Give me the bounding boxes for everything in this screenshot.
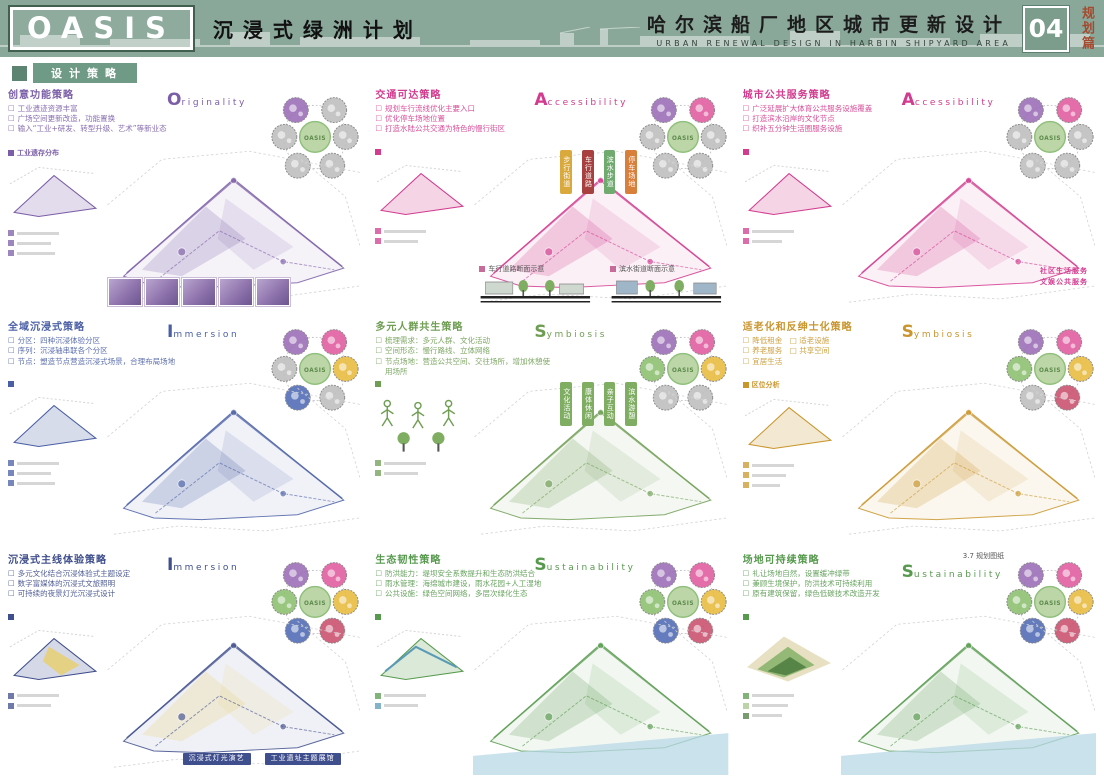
panel-bullets: □工业遗迹资源丰富 □广场空间更新改造，功能置换 □输入“工业+研发、转型升级、…	[8, 104, 185, 134]
panel-aging-anti-gentrification: 适老化和反绅士化策略 □降低租金 □ 适老设施 □养老服务 □ 共享空间 □宜居…	[743, 318, 1096, 542]
legend-row	[375, 238, 467, 244]
bullet-item: □优化停车场地位置	[375, 114, 552, 124]
bullet-item: □序列：沉浸轴串联各个分区	[8, 346, 185, 356]
panel-map-area	[106, 380, 361, 542]
activity-banner: 亲子互动	[604, 382, 616, 426]
bullet-text: 分区：四种沉浸体验分区	[18, 336, 101, 346]
checkbox-icon: □	[375, 357, 382, 377]
svg-text:OASIS: OASIS	[1039, 368, 1061, 374]
checkbox-icon: □	[8, 114, 15, 124]
checkbox-icon: □	[375, 336, 382, 346]
bullet-text: 降低租金 □ 适老设施	[752, 336, 829, 346]
photo-thumbnail	[256, 278, 290, 306]
bullet-text: 数字富媒体的沉浸式文旅照明	[18, 579, 116, 589]
bullet-item: □雨水管理：海绵城市建设，雨水花园+人工湿地	[375, 579, 552, 589]
legend-title: 区位分析	[743, 380, 835, 390]
checkbox-icon: □	[8, 569, 15, 579]
site-map	[106, 613, 361, 775]
panel-immersion-zoning: 全域沉浸式策略 □分区：四种沉浸体验分区 □序列：沉浸轴串联各个分区 □节点：塑…	[8, 318, 361, 542]
checkbox-icon: □	[375, 104, 382, 114]
panel-bullets: □防洪能力：堤坝安全系数提升和生态防洪结合 □雨水管理：海绵城市建设，雨水花园+…	[375, 569, 552, 599]
panel-site-sustainability: 3.7 规划图纸 场地可持续策略 □礼让场地自然，设置缓冲绿带 □兼顾生境保护，…	[743, 551, 1096, 775]
theme-labels: 沉浸式灯光演艺 工业遗址主题展馆	[183, 753, 341, 765]
bullet-item: □织补五分钟生活圈服务设施	[743, 124, 920, 134]
bullet-item: □空间形态：慢行路线、立体网络	[375, 346, 552, 356]
svg-text:OASIS: OASIS	[672, 136, 694, 142]
photo-thumbnail	[182, 278, 216, 306]
panel-keyword: Accessibility	[902, 90, 996, 110]
bullet-text: 公共设施：绿色空间网络，多层次绿化生态	[385, 589, 528, 599]
legend-row	[8, 703, 100, 709]
checkbox-icon: □	[743, 579, 750, 589]
strategy-grid: 创意功能策略 □工业遗迹资源丰富 □广场空间更新改造，功能置换 □输入“工业+研…	[8, 86, 1096, 775]
bullet-item: □兼顾生境保护，防洪技术可持续利用	[743, 579, 920, 589]
bullet-text: 梳理需求：多元人群、文化活动	[385, 336, 490, 346]
bullet-text: 礼让场地自然，设置缓冲绿带	[752, 569, 850, 579]
legend-title	[375, 613, 467, 621]
checkbox-icon: □	[8, 346, 15, 356]
legend-title	[375, 148, 467, 156]
section-caption: 滨水街道断面示意	[610, 264, 723, 274]
theme-label: 沉浸式灯光演艺	[183, 753, 251, 765]
checkbox-icon: □	[375, 346, 382, 356]
checkbox-icon: □	[8, 336, 15, 346]
bullet-text: 空间形态：慢行路线、立体网络	[385, 346, 490, 356]
svg-text:OASIS: OASIS	[304, 136, 326, 142]
panel-bullets: □礼让场地自然，设置缓冲绿带 □兼顾生境保护，防洪技术可持续利用 □原有建筑保留…	[743, 569, 920, 599]
checkbox-icon: □	[743, 346, 750, 356]
mini-map	[375, 160, 467, 224]
panel-keyword: Symbiosis	[534, 322, 607, 342]
photo-thumbnail	[108, 278, 142, 306]
panel-map-area	[473, 613, 728, 775]
panel-map-area	[106, 148, 361, 310]
panel-keyword: Immersion	[167, 555, 239, 575]
legend-row	[743, 228, 835, 234]
panel-keyword: Immersion	[167, 322, 239, 342]
photo-thumbnail	[219, 278, 253, 306]
panel-keyword: Originality	[167, 90, 247, 110]
legend-row	[8, 693, 100, 699]
panel-immersive-experience-line: 沉浸式主线体验策略 □多元文化结合沉浸体验式主题设定 □数字富媒体的沉浸式文旅照…	[8, 551, 361, 775]
bullet-text: 打造滨水沿岸的文化节点	[752, 114, 835, 124]
mini-map	[8, 625, 100, 689]
legend-title	[8, 380, 100, 388]
checkbox-icon: □	[8, 124, 15, 134]
bullet-item: □规划车行流线优化主要入口	[375, 104, 552, 114]
panel-bullets: □多元文化结合沉浸体验式主题设定 □数字富媒体的沉浸式文旅照明 □可持续的夜景灯…	[8, 569, 185, 599]
legend-row	[8, 250, 100, 256]
svg-text:OASIS: OASIS	[672, 368, 694, 374]
checkbox-icon: □	[8, 104, 15, 114]
bullet-item: □输入“工业+研发、转型升级、艺术”等新业态	[8, 124, 185, 134]
panel-mini-column	[743, 613, 835, 775]
svg-text:OASIS: OASIS	[672, 600, 694, 606]
panel-ecological-resilience: 生态韧性策略 □防洪能力：堤坝安全系数提升和生态防洪结合 □雨水管理：海绵城市建…	[375, 551, 728, 775]
section-drawing	[610, 276, 723, 306]
section-drawing	[479, 276, 592, 306]
checkbox-icon: □	[743, 114, 750, 124]
photo-thumbnail	[145, 278, 179, 306]
bullet-item: □梳理需求：多元人群、文化活动	[375, 336, 552, 346]
svg-text:OASIS: OASIS	[1039, 136, 1061, 142]
legend-title	[743, 613, 835, 621]
panel-keyword: Accessibility	[534, 90, 628, 110]
bullet-text: 养老服务 □ 共享空间	[752, 346, 829, 356]
legend-row	[375, 228, 467, 234]
panel-keyword: Symbiosis	[902, 322, 975, 342]
site-map	[841, 380, 1096, 542]
checkbox-icon: □	[375, 114, 382, 124]
bullet-item: □降低租金 □ 适老设施	[743, 336, 920, 346]
checkbox-icon: □	[8, 579, 15, 589]
service-label: 文娱公共服务	[1040, 279, 1088, 287]
road-banner: 车行道路	[582, 150, 594, 194]
bullet-item: □礼让场地自然，设置缓冲绿带	[743, 569, 920, 579]
bullet-text: 节点场地：营造公共空间、交往场所，增加休憩使用场所	[385, 357, 552, 377]
bullet-text: 原有建筑保留，绿色低碳技术改造开发	[752, 589, 880, 599]
bullet-text: 雨水管理：海绵城市建设，雨水花园+人工湿地	[385, 579, 541, 589]
panel-mini-column	[375, 148, 467, 310]
panel-mini-column	[8, 380, 100, 542]
site-map	[106, 380, 361, 542]
legend-row	[743, 462, 835, 468]
road-type-banners: 步行街道 车行道路 滨水步道 停车场地	[560, 150, 637, 194]
bullet-text: 兼顾生境保护，防洪技术可持续利用	[752, 579, 872, 589]
header-bar: OASIS 沉浸式绿洲计划 哈尔滨船厂地区城市更新设计 URBAN RENEWA…	[0, 0, 1104, 57]
panel-keyword: Sustainability	[534, 555, 635, 575]
bullet-text: 多元文化结合沉浸体验式主题设定	[18, 569, 131, 579]
project-title-zh: 沉浸式绿洲计划	[213, 14, 423, 43]
panel-mini-column	[375, 613, 467, 775]
legend-row	[8, 230, 100, 236]
mini-map	[743, 160, 835, 224]
bullet-item: □养老服务 □ 共享空间	[743, 346, 920, 356]
panel-mini-column	[8, 613, 100, 775]
panel-traffic-accessibility: 交通可达策略 □规划车行流线优化主要入口 □优化停车场地位置 □打造水陆公共交通…	[375, 86, 728, 310]
panel-map-area: 沉浸式灯光演艺 工业遗址主题展馆	[106, 613, 361, 775]
bullet-text: 节点：塑造节点营造沉浸式场景，合理布局场地	[18, 357, 176, 367]
bullet-item: □打造水陆公共交通为特色的慢行街区	[375, 124, 552, 134]
industrial-photos-strip	[108, 278, 290, 306]
legend-title	[375, 380, 467, 388]
legend-row	[375, 703, 467, 709]
chapter-label: 规划篇	[1077, 6, 1096, 51]
panel-mini-column	[743, 148, 835, 310]
legend-row	[375, 470, 467, 476]
checkbox-icon: □	[743, 589, 750, 599]
bullet-item: □原有建筑保留，绿色低碳技术改造开发	[743, 589, 920, 599]
mini-map	[375, 625, 467, 689]
section-square-icon	[12, 66, 27, 81]
theme-label: 工业遗址主题展馆	[265, 753, 341, 765]
bullet-text: 序列：沉浸轴串联各个分区	[18, 346, 108, 356]
service-label: 社区生活服务	[1040, 268, 1088, 276]
section-caption: 车行道路断面示意	[479, 264, 592, 274]
checkbox-icon: □	[8, 357, 15, 367]
checkbox-icon: □	[743, 124, 750, 134]
mini-map	[8, 162, 100, 226]
bullet-text: 广泛延展扩大体育公共服务设施覆盖	[752, 104, 872, 114]
bullet-item: □公共设施：绿色空间网络，多层次绿化生态	[375, 589, 552, 599]
section-title: 设计策略	[33, 63, 137, 83]
legend-row	[743, 472, 835, 478]
activity-banner: 文化活动	[560, 382, 572, 426]
bullet-item: □防洪能力：堤坝安全系数提升和生态防洪结合	[375, 569, 552, 579]
checkbox-icon: □	[375, 569, 382, 579]
bullet-item: □宜居生活	[743, 357, 920, 367]
panel-keyword: Sustainability	[902, 562, 1003, 582]
bullet-text: 工业遗迹资源丰富	[18, 104, 78, 114]
service-labels: 社区生活服务 文娱公共服务	[1040, 268, 1088, 286]
page-number-badge: 04	[1023, 6, 1069, 52]
panel-symbiosis-people: 多元人群共生策略 □梳理需求：多元人群、文化活动 □空间形态：慢行路线、立体网络…	[375, 318, 728, 542]
checkbox-icon: □	[743, 104, 750, 114]
bullet-item: □多元文化结合沉浸体验式主题设定	[8, 569, 185, 579]
bullet-text: 广场空间更新改造，功能置换	[18, 114, 116, 124]
legend-row	[743, 713, 835, 719]
oasis-logo: OASIS	[10, 7, 193, 51]
bullet-item: □广泛延展扩大体育公共服务设施覆盖	[743, 104, 920, 114]
road-banner: 停车场地	[625, 150, 637, 194]
legend-title: 工业遗存分布	[8, 148, 100, 158]
activity-banners: 文化活动 康体休闲 亲子互动 滨水游憩	[560, 382, 637, 426]
bullet-item: □数字富媒体的沉浸式文旅照明	[8, 579, 185, 589]
panel-bullets: □梳理需求：多元人群、文化活动 □空间形态：慢行路线、立体网络 □节点场地：营造…	[375, 336, 552, 377]
checkbox-icon: □	[8, 589, 15, 599]
bullet-text: 规划车行流线优化主要入口	[385, 104, 475, 114]
panel-map-area	[841, 613, 1096, 775]
panel-mini-column: 工业遗存分布	[8, 148, 100, 310]
svg-text:OASIS: OASIS	[1039, 600, 1061, 606]
bullet-item: □工业遗迹资源丰富	[8, 104, 185, 114]
street-sections: 车行道路断面示意 滨水街道断面示意	[473, 264, 728, 310]
legend-row	[375, 693, 467, 699]
panel-mini-column: 区位分析	[743, 380, 835, 542]
site-map	[841, 613, 1096, 775]
bullet-item: □分区：四种沉浸体验分区	[8, 336, 185, 346]
checkbox-icon: □	[375, 589, 382, 599]
street-section-diagram: 车行道路断面示意	[479, 264, 592, 310]
checkbox-icon: □	[743, 357, 750, 367]
panel-mini-column	[375, 380, 467, 542]
panel-originality: 创意功能策略 □工业遗迹资源丰富 □广场空间更新改造，功能置换 □输入“工业+研…	[8, 86, 361, 310]
bullet-item: □可持续的夜景灯光沉浸式设计	[8, 589, 185, 599]
panel-public-service: 城市公共服务策略 □广泛延展扩大体育公共服务设施覆盖 □打造滨水沿岸的文化节点 …	[743, 86, 1096, 310]
bullet-text: 可持续的夜景灯光沉浸式设计	[18, 589, 116, 599]
legend-row	[8, 480, 100, 486]
legend-row	[8, 460, 100, 466]
legend-row	[375, 460, 467, 466]
svg-text:OASIS: OASIS	[304, 368, 326, 374]
checkbox-icon: □	[743, 569, 750, 579]
svg-text:OASIS: OASIS	[304, 600, 326, 606]
legend-row	[743, 482, 835, 488]
panel-map-area: 步行街道 车行道路 滨水步道 停车场地 车行道路断面示意 滨水街道断面示意	[473, 148, 728, 310]
mini-map	[743, 394, 835, 458]
legend-row	[743, 703, 835, 709]
figure-note: 3.7 规划图纸	[963, 551, 1004, 561]
bullet-item: □广场空间更新改造，功能置换	[8, 114, 185, 124]
panel-bullets: □广泛延展扩大体育公共服务设施覆盖 □打造滨水沿岸的文化节点 □织补五分钟生活圈…	[743, 104, 920, 134]
bullet-text: 宜居生活	[752, 357, 782, 367]
checkbox-icon: □	[375, 579, 382, 589]
panel-bullets: □规划车行流线优化主要入口 □优化停车场地位置 □打造水陆公共交通为特色的慢行街…	[375, 104, 552, 134]
panel-map-area: 社区生活服务 文娱公共服务	[841, 148, 1096, 310]
bullet-item: □节点场地：营造公共空间、交往场所，增加休憩使用场所	[375, 357, 552, 377]
poster-board: OASIS 沉浸式绿洲计划 哈尔滨船厂地区城市更新设计 URBAN RENEWA…	[0, 0, 1104, 779]
road-banner: 滨水步道	[604, 150, 616, 194]
panel-map-area: 文化活动 康体休闲 亲子互动 滨水游憩	[473, 380, 728, 542]
legend-title	[8, 613, 100, 621]
legend-row	[743, 238, 835, 244]
section-header: 设计策略	[12, 63, 137, 83]
bullet-text: 输入“工业+研发、转型升级、艺术”等新业态	[18, 124, 167, 134]
bullet-text: 织补五分钟生活圈服务设施	[752, 124, 842, 134]
checkbox-icon: □	[743, 336, 750, 346]
road-banner: 步行街道	[560, 150, 572, 194]
mini-map	[8, 392, 100, 456]
panel-bullets: □降低租金 □ 适老设施 □养老服务 □ 共享空间 □宜居生活	[743, 336, 920, 366]
activity-banner: 康体休闲	[582, 382, 594, 426]
bullet-item: □打造滨水沿岸的文化节点	[743, 114, 920, 124]
land-use-mini-map	[743, 625, 835, 689]
bullet-text: 优化停车场地位置	[385, 114, 445, 124]
bullet-text: 打造水陆公共交通为特色的慢行街区	[385, 124, 505, 134]
legend-row	[8, 470, 100, 476]
people-activity-sketch	[375, 392, 467, 456]
panel-map-area	[841, 380, 1096, 542]
bullet-item: □节点：塑造节点营造沉浸式场景，合理布局场地	[8, 357, 185, 367]
board-title-en: URBAN RENEWAL DESIGN IN HARBIN SHIPYARD …	[647, 39, 1011, 48]
legend-row	[8, 240, 100, 246]
legend-title	[743, 148, 835, 156]
activity-banner: 滨水游憩	[625, 382, 637, 426]
checkbox-icon: □	[375, 124, 382, 134]
legend-row	[743, 693, 835, 699]
bullet-text: 防洪能力：堤坝安全系数提升和生态防洪结合	[385, 569, 535, 579]
street-section-diagram: 滨水街道断面示意	[610, 264, 723, 310]
site-map	[473, 613, 728, 775]
panel-bullets: □分区：四种沉浸体验分区 □序列：沉浸轴串联各个分区 □节点：塑造节点营造沉浸式…	[8, 336, 185, 366]
board-title-zh: 哈尔滨船厂地区城市更新设计	[647, 10, 1011, 37]
